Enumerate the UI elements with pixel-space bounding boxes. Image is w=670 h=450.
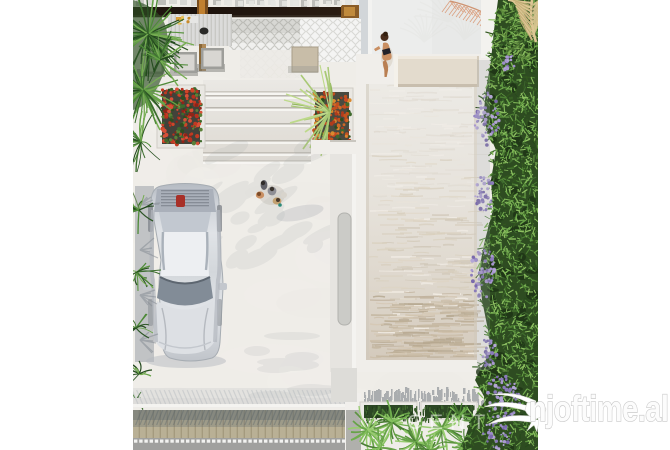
svg-text:CENT: CENT [407, 411, 492, 434]
svg-text:njoftime.al: njoftime.al [529, 388, 669, 429]
